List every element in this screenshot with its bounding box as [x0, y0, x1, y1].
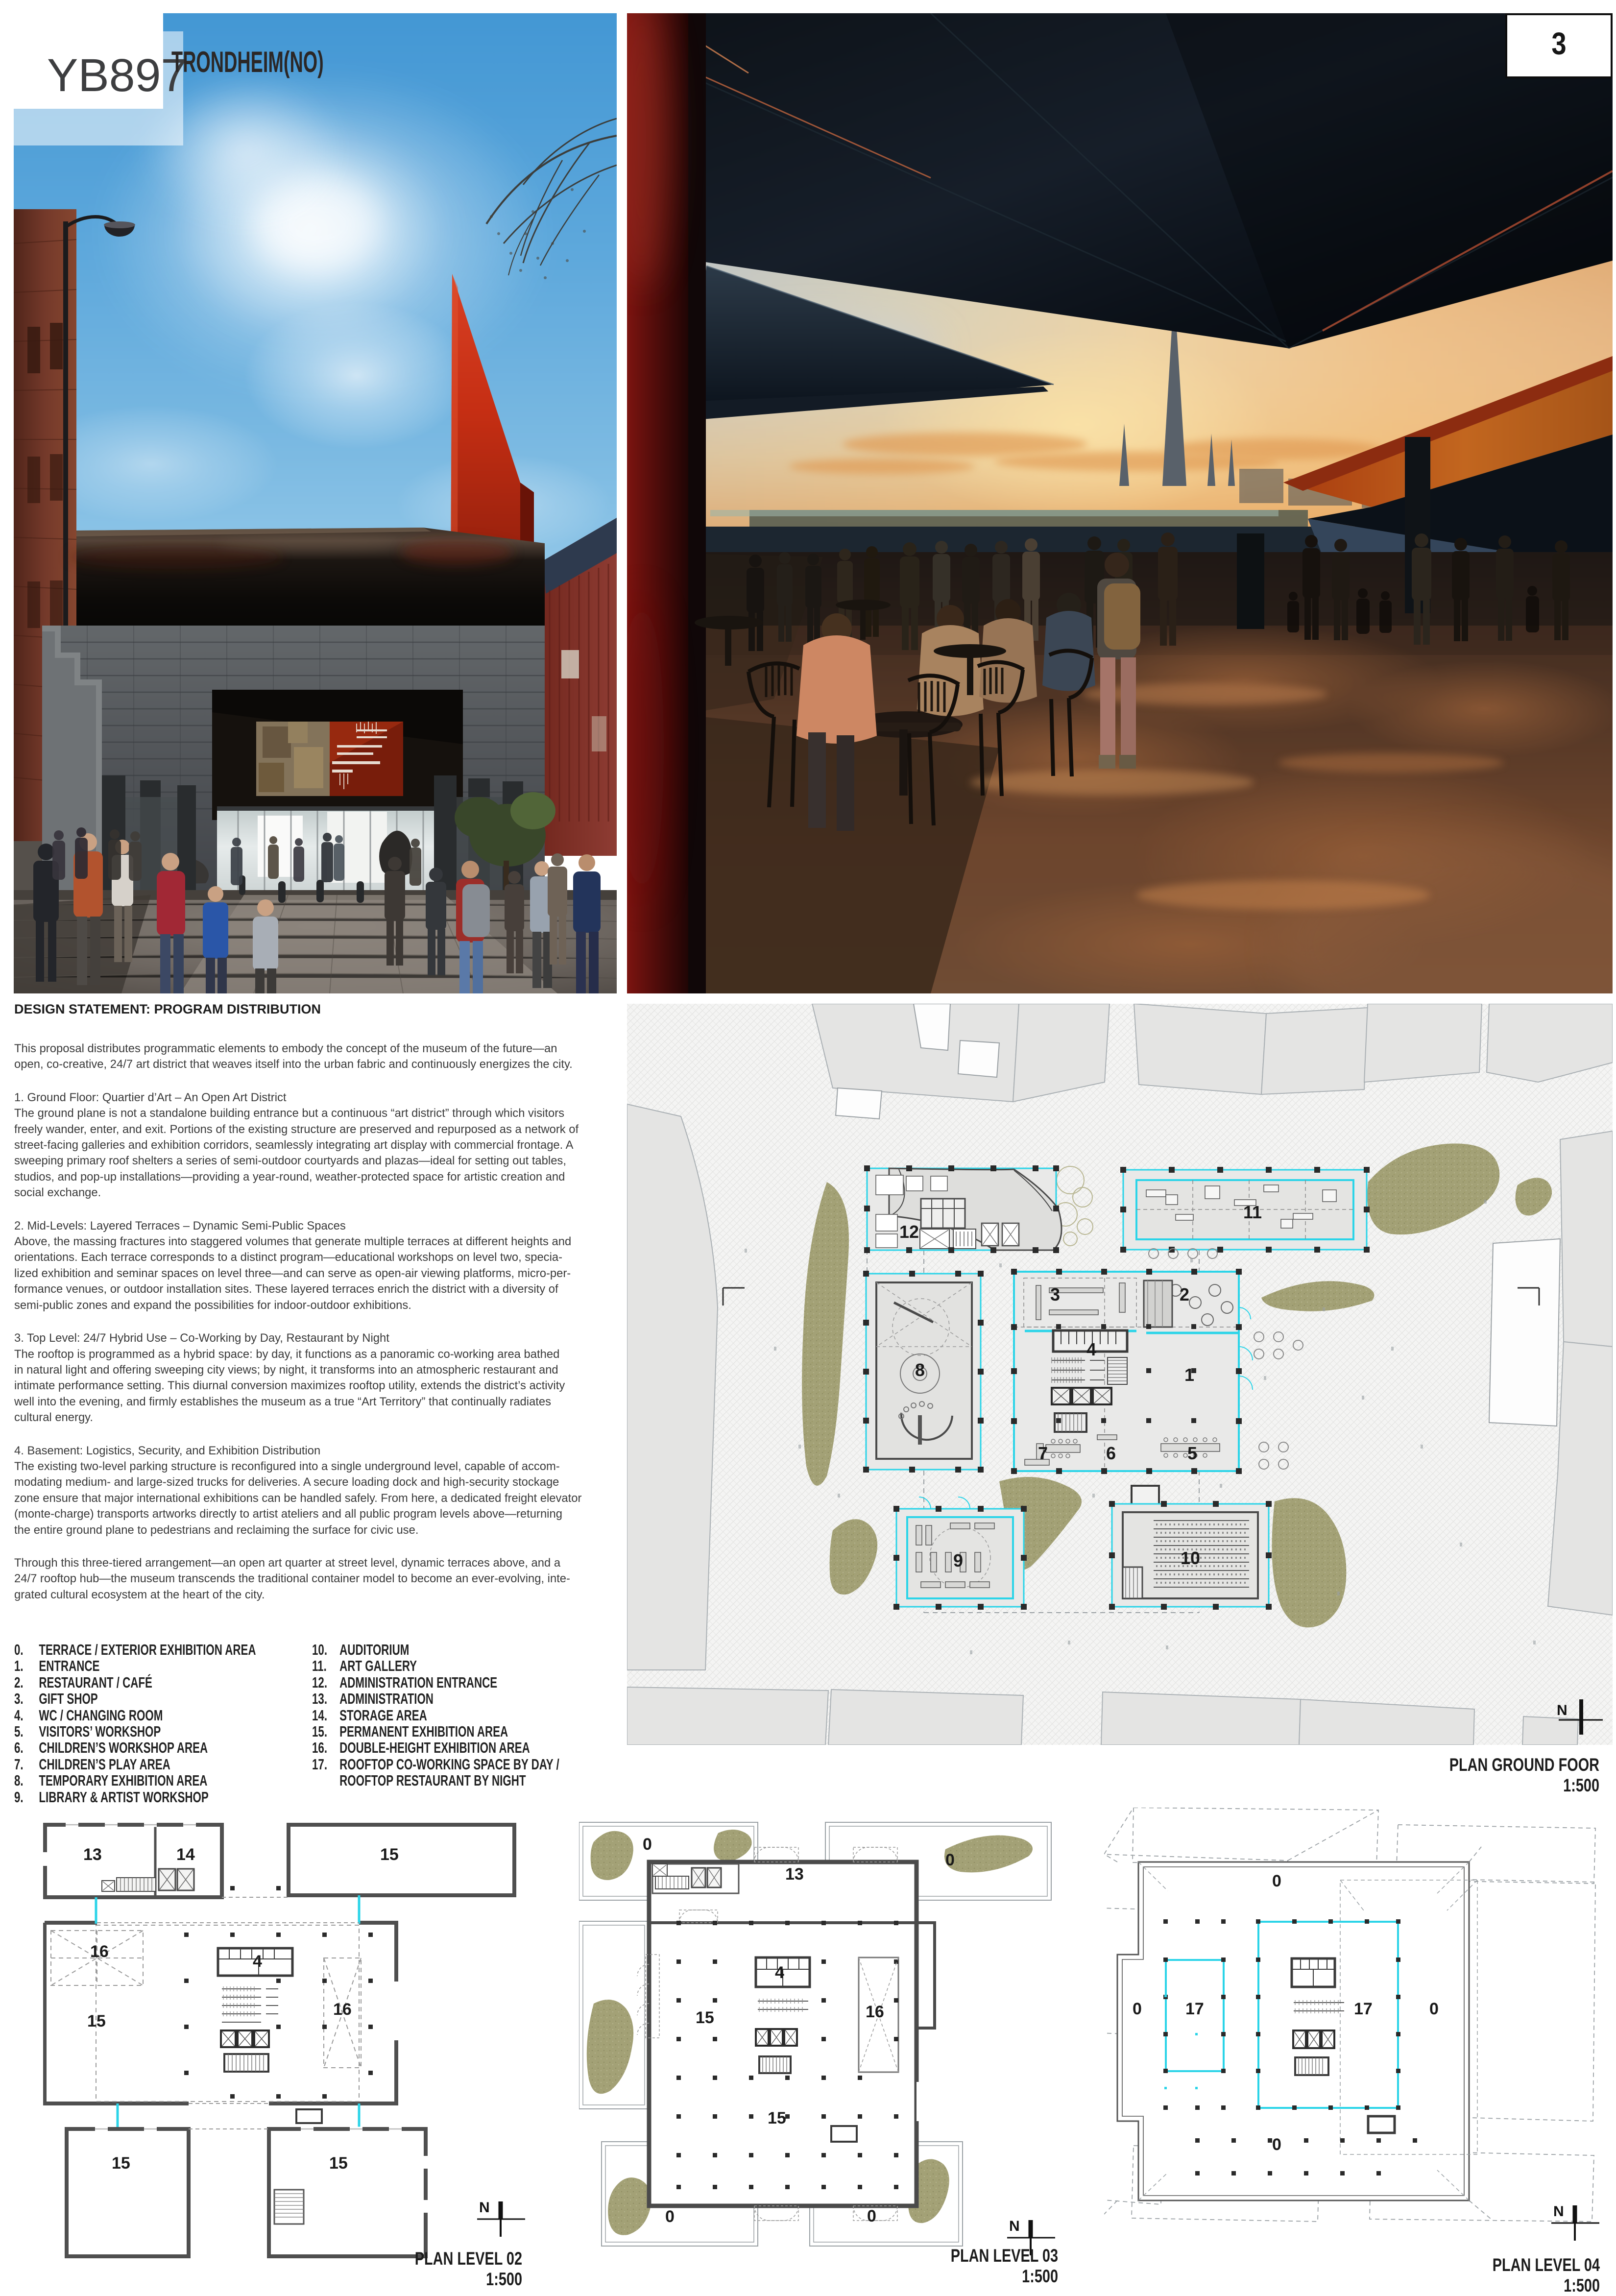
svg-text:13: 13 [83, 1845, 102, 1864]
svg-text:5: 5 [1187, 1443, 1197, 1463]
svg-text:14: 14 [176, 1845, 195, 1864]
svg-text:4: 4 [775, 1963, 784, 1982]
svg-text:17: 17 [1354, 2000, 1373, 2018]
svg-text:0: 0 [1272, 2135, 1281, 2154]
svg-text:0: 0 [867, 2207, 876, 2225]
svg-text:15: 15 [380, 1845, 399, 1864]
svg-text:0: 0 [665, 2207, 675, 2226]
svg-text:4: 4 [1086, 1339, 1096, 1359]
svg-text:0: 0 [945, 1851, 955, 1869]
svg-text:0: 0 [643, 1835, 652, 1854]
svg-text:13: 13 [785, 1865, 804, 1884]
svg-text:N: N [1557, 1702, 1568, 1718]
svg-text:7: 7 [1038, 1443, 1048, 1463]
svg-text:N: N [1553, 2203, 1564, 2220]
svg-text:6: 6 [1106, 1443, 1116, 1463]
svg-text:N: N [1009, 2218, 1020, 2234]
svg-text:9: 9 [953, 1550, 963, 1571]
svg-text:4: 4 [253, 1952, 262, 1971]
svg-text:15: 15 [329, 2154, 348, 2173]
svg-text:10: 10 [1181, 1548, 1200, 1568]
svg-text:17: 17 [1185, 2000, 1204, 2018]
svg-text:0: 0 [1272, 1872, 1281, 1890]
svg-text:12: 12 [899, 1222, 919, 1242]
svg-text:0: 0 [1429, 2000, 1439, 2018]
svg-text:16: 16 [90, 1942, 109, 1961]
svg-text:11: 11 [1243, 1202, 1262, 1222]
svg-text:N: N [479, 2199, 490, 2216]
svg-text:15: 15 [768, 2109, 786, 2127]
svg-text:16: 16 [866, 2003, 884, 2021]
svg-text:0: 0 [1133, 2000, 1142, 2018]
svg-text:2: 2 [1180, 1284, 1189, 1305]
svg-text:1: 1 [1184, 1365, 1194, 1385]
svg-text:3: 3 [1050, 1284, 1060, 1305]
svg-text:16: 16 [333, 2000, 352, 2019]
svg-text:15: 15 [112, 2154, 130, 2173]
svg-text:8: 8 [915, 1360, 925, 1380]
svg-text:15: 15 [87, 2012, 106, 2030]
svg-text:15: 15 [696, 2008, 714, 2027]
